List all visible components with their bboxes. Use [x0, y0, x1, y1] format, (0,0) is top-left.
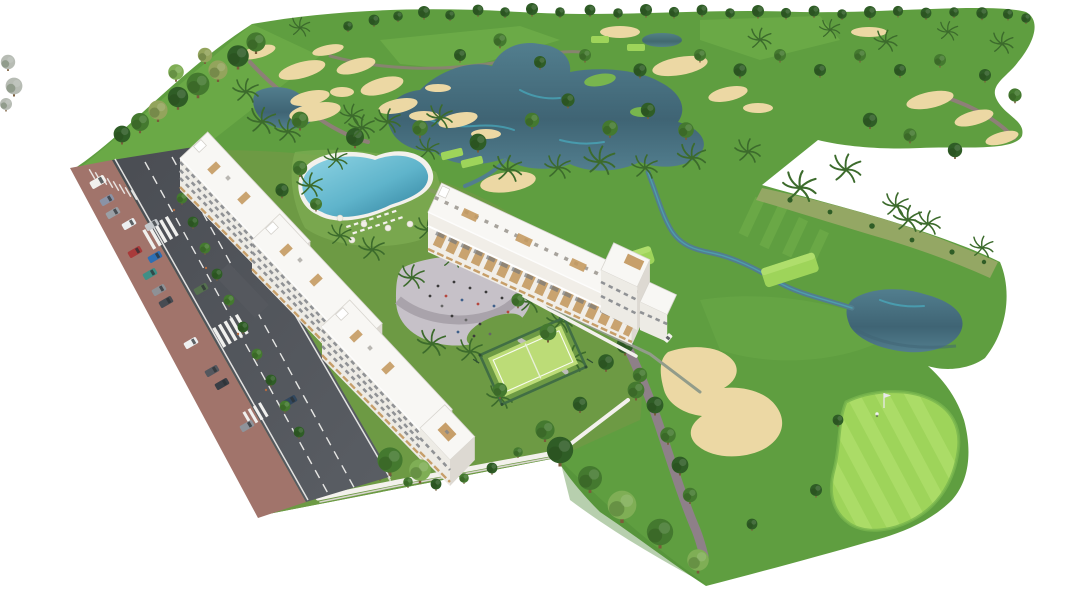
small-pond	[642, 33, 682, 47]
pool-area	[292, 148, 441, 246]
architectural-render	[0, 0, 1068, 600]
scene-canvas	[0, 0, 1068, 600]
